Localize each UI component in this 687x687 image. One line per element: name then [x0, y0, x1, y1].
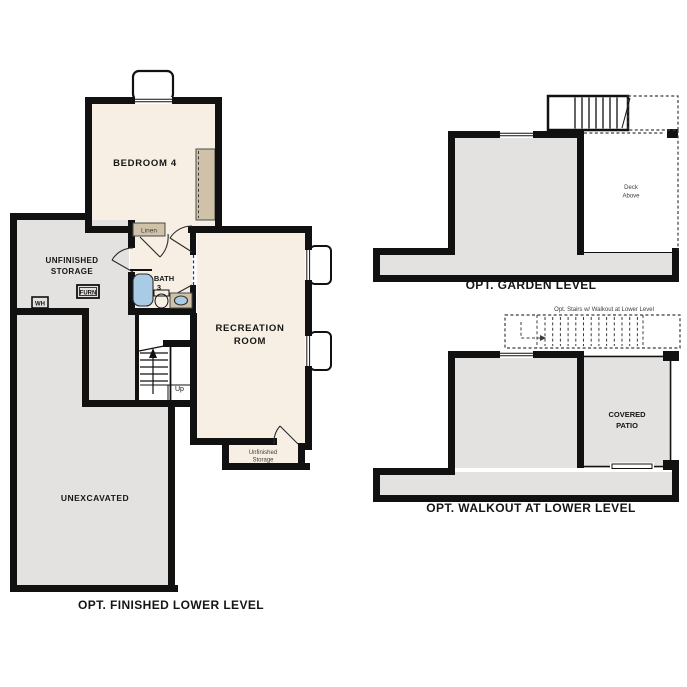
finished-lower-caption: OPT. FINISHED LOWER LEVEL: [78, 598, 264, 612]
plan-finished-lower-level: BEDROOM 4 UNFINISHED STORAGE FURN WH Lin…: [10, 71, 331, 612]
deck-above-label-line1: Deck: [624, 185, 639, 191]
plan-walkout-level: Opt. Stairs w/ Walkout at Lower Level CO…: [373, 307, 680, 515]
bath3-label-line1: BATH: [154, 274, 174, 283]
recreation-room-area: [197, 226, 312, 468]
sink-vanity: [170, 293, 192, 308]
floorplan-page: BEDROOM 4 UNFINISHED STORAGE FURN WH Lin…: [0, 0, 687, 687]
recreation-window-2: [305, 332, 331, 370]
bedroom4-label: BEDROOM 4: [113, 158, 177, 169]
water-heater-label: WH: [35, 302, 45, 308]
recreation-window-1: [305, 246, 331, 284]
walkout-tower-area: [455, 358, 577, 468]
up-label: Up: [175, 386, 184, 393]
deck-outline: [584, 96, 678, 250]
covered-patio-label-line2: PATIO: [616, 421, 638, 430]
storage-label-line1: UNFINISHED: [46, 256, 99, 265]
walkout-stairs-note: Opt. Stairs w/ Walkout at Lower Level: [554, 307, 654, 313]
deck-above-label-line2: Above: [622, 194, 640, 200]
garden-level-caption: OPT. GARDEN LEVEL: [466, 278, 597, 292]
furnace-label: FURN: [80, 291, 97, 297]
garden-window: [500, 131, 533, 138]
garden-tower-area: [455, 138, 577, 255]
small-storage-label-line1: Unfinished: [249, 450, 277, 456]
covered-patio-label-line1: COVERED: [608, 410, 646, 419]
garden-stairs: [548, 96, 630, 130]
walkout-band-area: [380, 472, 672, 495]
small-storage-label-line2: Storage: [252, 458, 274, 464]
walkout-window: [500, 351, 533, 358]
plan-garden-level: Deck Above OPT. GARDEN LEVEL: [373, 96, 679, 292]
walkout-stairs-dashed: [505, 315, 680, 348]
linen-label: Linen: [141, 228, 157, 235]
recreation-label-line1: RECREATION: [215, 323, 284, 334]
walkout-caption: OPT. WALKOUT AT LOWER LEVEL: [426, 501, 635, 515]
recreation-label-line2: ROOM: [234, 336, 266, 347]
bath3-label-line2: 3: [157, 283, 161, 292]
storage-label-line2: STORAGE: [51, 267, 93, 276]
bathtub: [133, 274, 153, 306]
garden-band-area: [380, 252, 672, 275]
floorplan-canvas: BEDROOM 4 UNFINISHED STORAGE FURN WH Lin…: [0, 0, 687, 687]
unexcavated-label: UNEXCAVATED: [61, 493, 129, 503]
egress-window-well: [133, 71, 173, 100]
bedroom-window: [135, 97, 172, 104]
